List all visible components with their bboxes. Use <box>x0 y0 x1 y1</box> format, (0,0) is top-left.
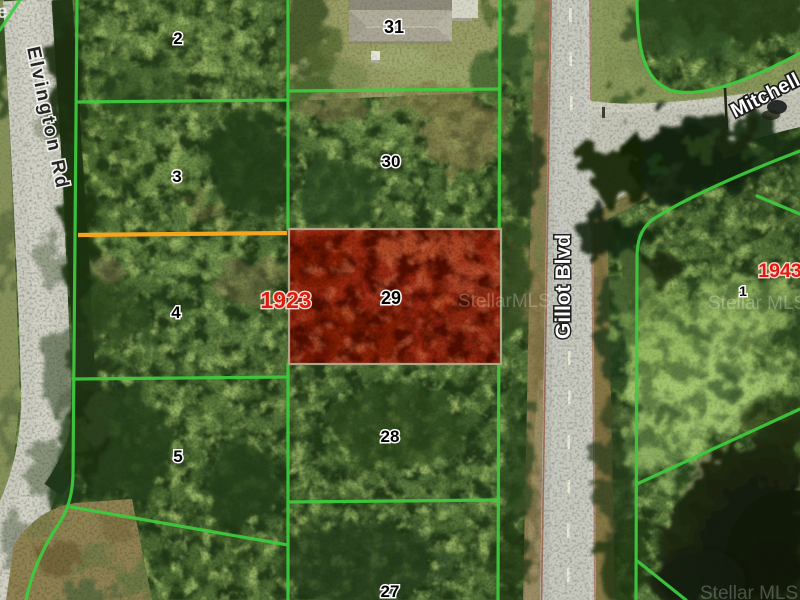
svg-text:3: 3 <box>172 167 181 186</box>
svg-text:Gillot Blvd: Gillot Blvd <box>552 234 575 339</box>
svg-text:29: 29 <box>381 288 401 308</box>
svg-text:1923: 1923 <box>260 287 311 313</box>
svg-text:4: 4 <box>171 303 181 322</box>
svg-text:28: 28 <box>381 427 400 446</box>
svg-text:31: 31 <box>384 17 404 37</box>
svg-text:Stellar MLS: Stellar MLS <box>708 293 800 314</box>
svg-text:e: e <box>0 2 8 23</box>
svg-text:5: 5 <box>173 447 182 466</box>
svg-text:30: 30 <box>382 152 401 171</box>
svg-text:27: 27 <box>381 582 400 600</box>
svg-text:StellarMLS: StellarMLS <box>458 291 551 312</box>
svg-text:1943: 1943 <box>758 260 800 282</box>
svg-text:Stellar MLS: Stellar MLS <box>700 583 798 600</box>
svg-text:2: 2 <box>173 29 182 48</box>
